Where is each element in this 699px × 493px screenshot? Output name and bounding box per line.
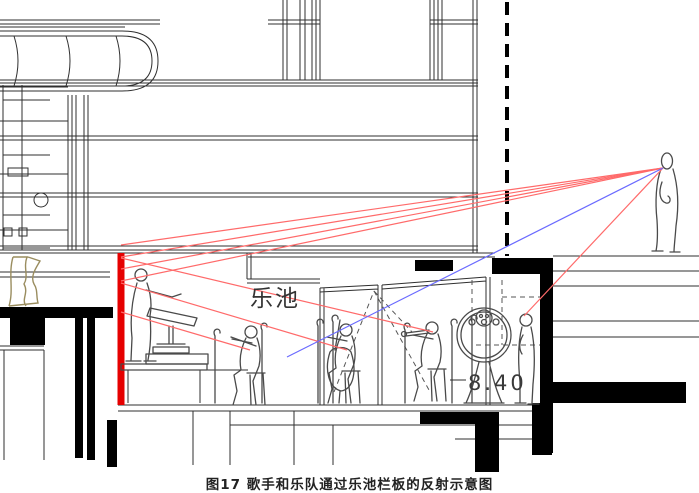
pit-ceiling-beam bbox=[415, 260, 453, 271]
conductor-figure bbox=[121, 269, 208, 370]
machinery-block-1 bbox=[4, 228, 12, 236]
floor-lines bbox=[0, 20, 495, 257]
audience-floor-slab bbox=[553, 382, 686, 403]
cellist-figure bbox=[327, 324, 360, 403]
level-label: 8.40 bbox=[468, 371, 527, 395]
pit-front-wall-b bbox=[87, 318, 95, 460]
violinist-figure bbox=[232, 326, 265, 405]
column-lines bbox=[68, 0, 477, 253]
stage-wall-block bbox=[10, 318, 45, 345]
figure-17-section-diagram: 乐池 8.40 图17 歌手和乐队通过乐池栏板的反射示意图 bbox=[0, 0, 699, 493]
pit-label: 乐池 bbox=[250, 286, 300, 312]
basement-pier bbox=[475, 412, 499, 472]
trumpet bbox=[406, 330, 429, 336]
trumpet-bell bbox=[402, 332, 407, 337]
machinery-block-2 bbox=[19, 228, 27, 236]
pit-front-wall-base bbox=[107, 420, 117, 467]
orchestra-pit-structure bbox=[118, 253, 699, 465]
section-cut-masses bbox=[0, 2, 686, 472]
machinery-box bbox=[8, 168, 28, 176]
figure-caption: 图17 歌手和乐队通过乐池栏板的反射示意图 bbox=[0, 473, 699, 493]
stage-curtain bbox=[9, 257, 40, 306]
pit-front-wall-a bbox=[75, 318, 83, 458]
section-drawing: 乐池 8.40 bbox=[0, 0, 699, 493]
stage-slab bbox=[0, 307, 113, 318]
pit-rear-wall-footing bbox=[532, 403, 552, 455]
machinery-pulley bbox=[34, 193, 48, 207]
reflected-sound-rays-red bbox=[121, 168, 663, 350]
audience-floor-steps bbox=[553, 256, 699, 337]
listener-figure bbox=[652, 153, 680, 252]
direct-sound-ray-blue bbox=[287, 168, 663, 357]
proscenium-molding bbox=[0, 27, 158, 91]
